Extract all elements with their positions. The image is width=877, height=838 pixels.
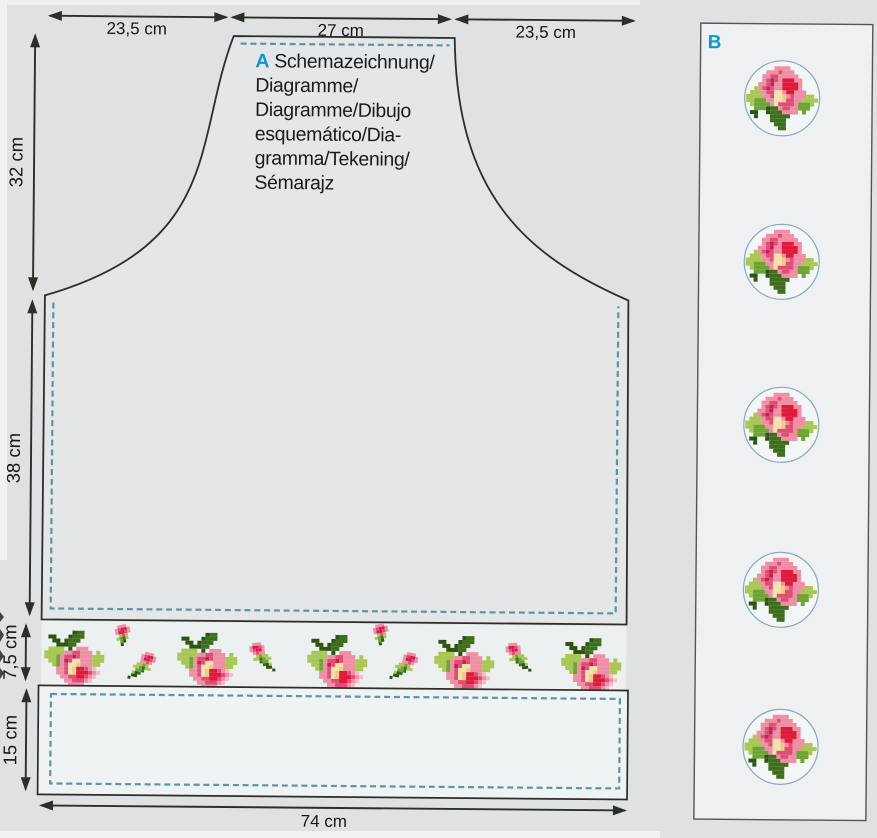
svg-text:74 cm: 74 cm [301, 812, 347, 831]
svg-text:32 cm: 32 cm [5, 137, 26, 188]
svg-text:B: B [708, 32, 722, 53]
svg-text:gramma/Tekening/: gramma/Tekening/ [255, 147, 411, 170]
svg-text:Sémarajz: Sémarajz [254, 172, 334, 195]
svg-text:27 cm: 27 cm [318, 21, 364, 40]
svg-text:15 cm: 15 cm [0, 715, 21, 766]
svg-text:23,5 cm: 23,5 cm [515, 23, 576, 43]
svg-text:23,5 cm: 23,5 cm [106, 19, 167, 39]
svg-text:Diagramme/: Diagramme/ [255, 75, 359, 98]
svg-text:Diagramme/Dibujo: Diagramme/Dibujo [255, 99, 412, 122]
svg-text:7,5 cm: 7,5 cm [0, 624, 20, 680]
svg-text:esquemático/Dia-: esquemático/Dia- [255, 123, 401, 146]
svg-text:A Schemazeichnung/: A Schemazeichnung/ [255, 50, 435, 74]
